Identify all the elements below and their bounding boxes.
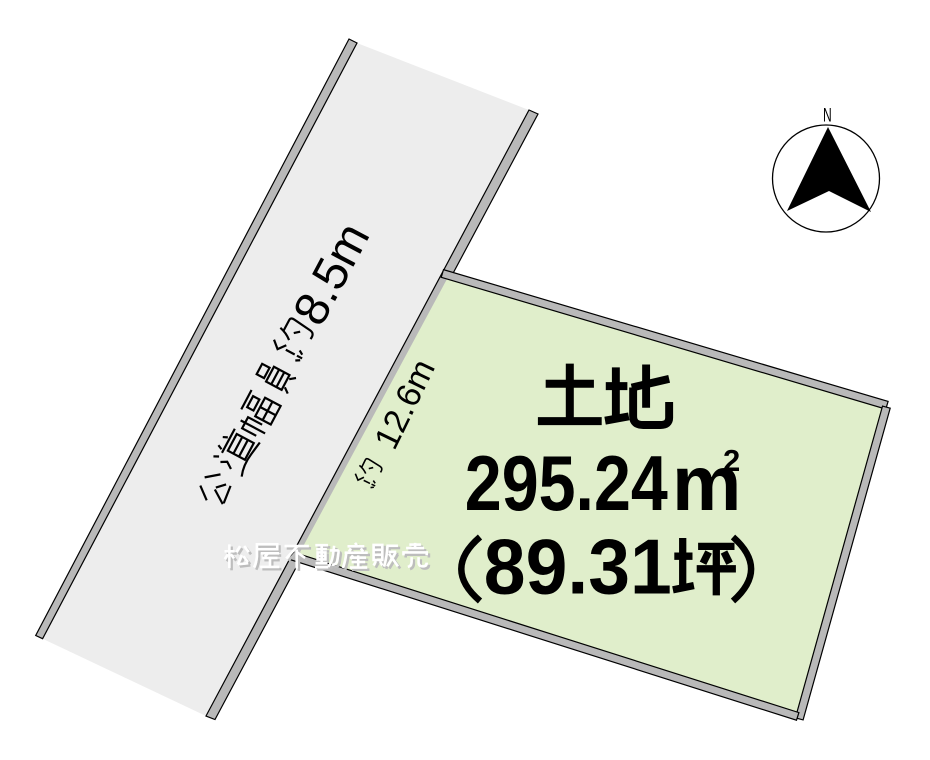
svg-text:295.24: 295.24 [465, 440, 668, 527]
svg-text:N: N [823, 104, 832, 126]
svg-text:2: 2 [723, 443, 740, 478]
svg-text:89.31: 89.31 [484, 524, 672, 611]
